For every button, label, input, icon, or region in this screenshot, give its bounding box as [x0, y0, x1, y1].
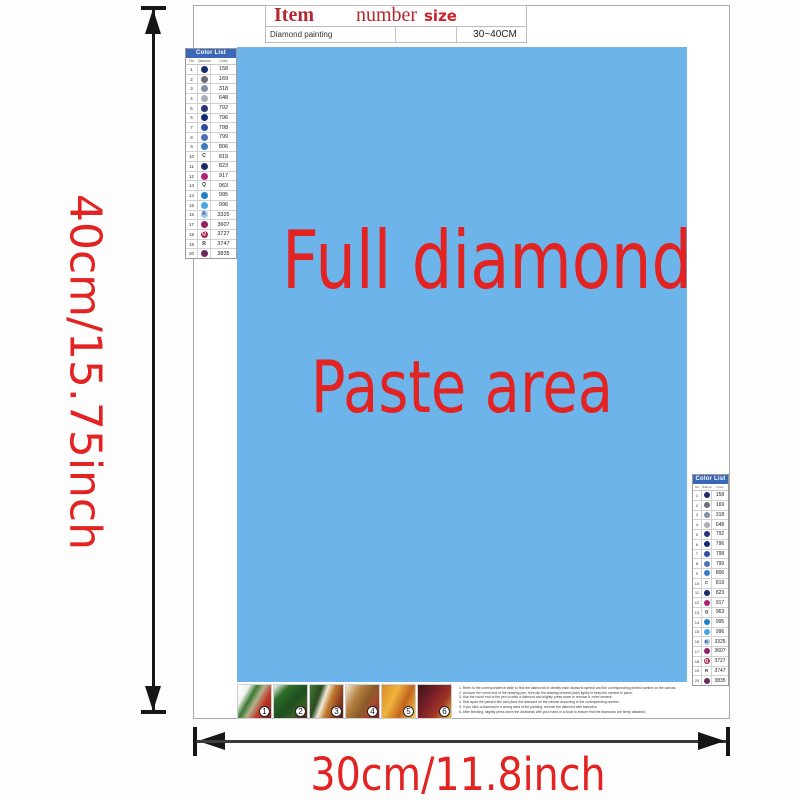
diamond-symbol-icon [201, 202, 208, 209]
item-table-row: Diamond painting 30~40CM [266, 27, 526, 43]
diamond-symbol-icon [704, 678, 710, 684]
diamond-symbol-cell [198, 104, 211, 113]
color-list-row: 16 K 3325 [693, 637, 728, 647]
diamond-symbol-cell [198, 123, 211, 132]
color-row-number: 10 [186, 152, 198, 161]
color-row-number: 5 [693, 530, 702, 539]
diamond-symbol-icon [201, 114, 208, 121]
dmc-color-code: 3325 [712, 639, 728, 645]
color-row-number: 8 [693, 559, 702, 568]
diamond-symbol-cell [198, 75, 211, 84]
color-row-number: 12 [186, 172, 198, 181]
color-row-number: 18 [186, 230, 198, 239]
diamond-symbol-icon [704, 600, 710, 606]
diamond-symbol-icon [704, 561, 710, 567]
color-row-number: 14 [186, 191, 198, 200]
color-list-row: 15 996 [186, 201, 236, 211]
color-list-row: 9 806 [693, 569, 728, 579]
width-arrow-line [196, 740, 727, 743]
step-number-badge: 2 [295, 706, 306, 717]
color-row-number: 16 [186, 211, 198, 220]
diamond-symbol-cell: K [198, 211, 211, 220]
color-row-number: 3 [693, 511, 702, 520]
color-row-number: 4 [186, 94, 198, 103]
col-diamond-label: Diamond [198, 58, 211, 64]
dmc-color-code: 158 [712, 492, 728, 498]
diamond-symbol-cell [702, 520, 712, 529]
diamond-symbol-cell [702, 550, 712, 559]
diamond-symbol-icon [704, 590, 710, 596]
diamond-symbol-icon [704, 551, 710, 557]
diamond-symbol-cell: Q [198, 181, 211, 190]
color-row-number: 20 [693, 676, 702, 685]
dmc-color-code: 996 [712, 629, 728, 635]
diamond-symbol-icon [201, 95, 208, 102]
color-list-row: 15 996 [693, 628, 728, 638]
col-color-label: Color [712, 484, 728, 490]
color-row-number: 11 [186, 162, 198, 171]
item-table-header: Item number size [266, 6, 526, 27]
diamond-symbol-cell [702, 501, 712, 510]
color-list-subheader: No. Diamond Color [186, 58, 236, 65]
dmc-color-code: 318 [712, 512, 728, 518]
dmc-color-code: 3747 [712, 668, 728, 674]
diamond-symbol-icon: C [201, 153, 208, 160]
dmc-color-code: 806 [712, 570, 728, 576]
step-thumbnail-image: 6 [417, 684, 452, 719]
color-list-row: 10 C 819 [693, 579, 728, 589]
color-list-row: 4 648 [186, 94, 236, 104]
diamond-symbol-cell: K [702, 637, 712, 646]
color-row-number: 14 [693, 618, 702, 627]
diamond-symbol-icon: K [201, 211, 208, 218]
color-list-row: 1 158 [186, 65, 236, 75]
color-list-row: 14 995 [693, 618, 728, 628]
color-list-left: Color List No. Diamond Color 1 158 2 169… [185, 48, 237, 259]
diamond-symbol-cell [702, 598, 712, 607]
dmc-color-code: 917 [712, 600, 728, 606]
col-color-label: Color [211, 58, 236, 64]
diamond-symbol-cell [702, 618, 712, 627]
color-row-number: 1 [186, 65, 198, 74]
color-row-number: 11 [693, 589, 702, 598]
color-row-number: 7 [186, 123, 198, 132]
step-thumbnail-image: 4 [345, 684, 380, 719]
dmc-color-code: 3325 [211, 212, 236, 218]
width-arrow-right-head [698, 732, 725, 750]
dmc-color-code: 3835 [211, 251, 236, 257]
color-list-row: 18 Q 3727 [186, 230, 236, 240]
diamond-symbol-cell: R [198, 240, 211, 249]
diamond-symbol-cell [702, 540, 712, 549]
color-row-number: 19 [693, 667, 702, 676]
dmc-color-code: 648 [712, 522, 728, 528]
step-number-badge: 3 [331, 706, 342, 717]
dmc-color-code: 796 [211, 115, 236, 121]
color-list-row: 8 799 [693, 559, 728, 569]
dmc-color-code: 799 [712, 561, 728, 567]
color-row-number: 20 [186, 249, 198, 258]
dmc-color-code: 169 [712, 502, 728, 508]
diamond-symbol-cell: Q [198, 230, 211, 239]
dmc-color-code: 823 [712, 590, 728, 596]
color-list-row: 5 792 [693, 530, 728, 540]
color-list-row: 7 798 [693, 550, 728, 560]
step-number-badge: 4 [367, 706, 378, 717]
color-list-row: 13 Q 963 [186, 181, 236, 191]
step-thumbnails: 1 2 3 4 5 6 [237, 684, 457, 719]
dmc-color-code: 963 [712, 609, 728, 615]
dmc-color-code: 823 [211, 163, 236, 169]
diamond-symbol-icon [704, 648, 710, 654]
color-list-row: 19 R 3747 [186, 240, 236, 250]
color-list-subheader: No. Diamond Color [693, 484, 728, 491]
color-row-number: 13 [186, 181, 198, 190]
color-list-row: 16 K 3325 [186, 211, 236, 221]
item-header-label: Item [274, 4, 314, 27]
step-thumbnail-image: 3 [309, 684, 344, 719]
diamond-symbol-cell [702, 628, 712, 637]
paste-area-title: Full diamonds [282, 214, 642, 307]
diamond-symbol-icon [704, 570, 710, 576]
color-list-row: 3 318 [186, 84, 236, 94]
diamond-symbol-cell [198, 65, 211, 74]
color-list-row: 11 823 [693, 589, 728, 599]
diamond-symbol-cell [198, 133, 211, 142]
diamond-symbol-cell [198, 249, 211, 258]
color-list-row: 17 3607 [693, 647, 728, 657]
diamond-symbol-cell [198, 172, 211, 181]
color-row-number: 13 [693, 608, 702, 617]
height-dimension-label: 40cm/15.75inch [60, 194, 111, 550]
dmc-color-code: 995 [211, 192, 236, 198]
diamond-symbol-cell [198, 191, 211, 200]
instruction-text-block: 1. Refer to the correspondence table to … [459, 686, 703, 714]
diamond-symbol-cell [198, 162, 211, 171]
diamond-symbol-cell: C [198, 152, 211, 161]
dmc-color-code: 799 [211, 134, 236, 140]
diamond-symbol-icon [201, 124, 208, 131]
diamond-symbol-icon [201, 173, 208, 180]
color-row-number: 2 [186, 75, 198, 84]
diamond-symbol-cell [198, 143, 211, 152]
diamond-symbol-icon [201, 105, 208, 112]
color-row-number: 7 [693, 550, 702, 559]
table-divider [395, 27, 396, 43]
diamond-symbol-icon [201, 143, 208, 150]
diamond-symbol-icon [704, 629, 710, 635]
diamond-symbol-icon [201, 192, 208, 199]
diamond-symbol-cell [702, 559, 712, 568]
color-list-row: 6 796 [693, 540, 728, 550]
diamond-symbol-icon [704, 531, 710, 537]
color-list-row: 4 648 [693, 520, 728, 530]
diamond-symbol-cell [198, 94, 211, 103]
color-list-row: 11 823 [186, 162, 236, 172]
step-thumbnail-image: 2 [273, 684, 308, 719]
dmc-color-code: 169 [211, 76, 236, 82]
height-arrow-down-head [145, 686, 161, 711]
col-no-label: No. [186, 58, 198, 64]
dmc-color-code: 648 [211, 95, 236, 101]
color-list-row: 3 318 [693, 511, 728, 521]
color-row-number: 19 [186, 240, 198, 249]
col-diamond-label: Diamond [702, 484, 712, 490]
height-arrow-line [152, 10, 155, 711]
diamond-symbol-icon [704, 541, 710, 547]
dmc-color-code: 3607 [712, 648, 728, 654]
color-list-row: 9 806 [186, 143, 236, 153]
color-row-number: 10 [693, 579, 702, 588]
dmc-color-code: 318 [211, 86, 236, 92]
color-row-number: 6 [186, 114, 198, 123]
diamond-symbol-cell: R [702, 667, 712, 676]
color-row-number: 9 [693, 569, 702, 578]
diamond-symbol-icon [704, 502, 710, 508]
item-info-table: Item number size Diamond painting 30~40C… [265, 5, 527, 43]
color-row-number: 15 [693, 628, 702, 637]
diamond-symbol-icon: K [704, 639, 710, 645]
color-list-right: Color List No. Diamond Color 1 158 2 169… [692, 474, 729, 686]
color-row-number: 1 [693, 491, 702, 500]
dmc-color-code: 3727 [211, 231, 236, 237]
diamond-symbol-icon: Q [201, 182, 208, 189]
diamond-symbol-cell [702, 530, 712, 539]
diamond-symbol-icon [201, 76, 208, 83]
diamond-symbol-cell: C [702, 579, 712, 588]
width-arrow-right-cap [726, 727, 730, 756]
color-row-number: 17 [693, 647, 702, 656]
diamond-symbol-icon [704, 522, 710, 528]
dmc-color-code: 3727 [712, 658, 728, 664]
item-name-value: Diamond painting [270, 30, 332, 39]
paste-area-subtitle: Paste area [282, 345, 642, 429]
color-list-title: Color List [186, 49, 236, 58]
diamond-symbol-icon [201, 221, 208, 228]
color-list-row: 20 3835 [693, 676, 728, 685]
diamond-symbol-cell [198, 114, 211, 123]
dmc-color-code: 819 [712, 580, 728, 586]
diamond-symbol-icon: Q [704, 609, 710, 615]
instruction-line: 6. After finishing, slightly press down … [459, 710, 703, 715]
diamond-symbol-cell: Q [702, 657, 712, 666]
diamond-symbol-cell [702, 676, 712, 685]
dmc-color-code: 3835 [712, 678, 728, 684]
color-row-number: 15 [186, 201, 198, 210]
color-row-number: 16 [693, 637, 702, 646]
step-number-badge: 1 [259, 706, 270, 717]
color-list-row: 13 Q 963 [693, 608, 728, 618]
dmc-color-code: 798 [211, 125, 236, 131]
dmc-color-code: 963 [211, 183, 236, 189]
dmc-color-code: 3747 [211, 241, 236, 247]
color-list-row: 6 796 [186, 114, 236, 124]
dmc-color-code: 917 [211, 173, 236, 179]
dmc-color-code: 796 [712, 541, 728, 547]
color-row-number: 17 [186, 220, 198, 229]
color-row-number: 9 [186, 143, 198, 152]
step-thumbnail-image: 5 [381, 684, 416, 719]
color-list-body: 1 158 2 169 3 318 4 648 [693, 491, 728, 685]
paste-area: Full diamonds Paste area [237, 47, 687, 682]
color-row-number: 3 [186, 84, 198, 93]
color-list-row: 12 917 [693, 598, 728, 608]
diamond-symbol-cell [702, 491, 712, 500]
color-row-number: 8 [186, 133, 198, 142]
color-list-row: 5 792 [186, 104, 236, 114]
diamond-symbol-icon [704, 492, 710, 498]
diamond-symbol-icon: Q [201, 231, 208, 238]
dmc-color-code: 995 [712, 619, 728, 625]
color-list-row: 8 799 [186, 133, 236, 143]
step-number-badge: 5 [403, 706, 414, 717]
color-row-number: 18 [693, 657, 702, 666]
color-list-row: 18 Q 3727 [693, 657, 728, 667]
color-list-row: 20 3835 [186, 249, 236, 258]
dmc-color-code: 792 [211, 105, 236, 111]
height-arrow-bottom-cap [141, 710, 166, 714]
dmc-color-code: 158 [211, 66, 236, 72]
diamond-symbol-icon: Q [704, 658, 710, 664]
diamond-symbol-cell [702, 647, 712, 656]
width-dimension-label: 30cm/11.8inch [310, 748, 605, 800]
item-size-value: 30~40CM [466, 29, 524, 40]
diamond-symbol-cell [702, 511, 712, 520]
color-list-row: 2 169 [186, 75, 236, 85]
color-row-number: 4 [693, 520, 702, 529]
diamond-symbol-icon: R [201, 241, 208, 248]
dmc-color-code: 792 [712, 531, 728, 537]
instruction-line: 1. Refer to the correspondence table to … [459, 686, 703, 691]
dmc-color-code: 806 [211, 144, 236, 150]
diamond-symbol-icon: R [704, 668, 710, 674]
color-list-title: Color List [693, 475, 728, 484]
size-header-label: size [424, 7, 457, 25]
table-divider [456, 27, 457, 43]
step-number-badge: 6 [439, 706, 450, 717]
step-thumbnail-image: 1 [237, 684, 272, 719]
dmc-color-code: 819 [211, 154, 236, 160]
color-list-row: 7 798 [186, 123, 236, 133]
color-list-row: 10 C 819 [186, 152, 236, 162]
number-header-label: number [356, 4, 417, 27]
diamond-symbol-icon [201, 250, 208, 257]
diamond-symbol-cell [702, 589, 712, 598]
diamond-symbol-icon [201, 66, 208, 73]
color-list-row: 17 3607 [186, 220, 236, 230]
diamond-symbol-icon [201, 85, 208, 92]
dmc-color-code: 996 [211, 202, 236, 208]
color-row-number: 6 [693, 540, 702, 549]
color-list-row: 12 917 [186, 172, 236, 182]
diamond-symbol-cell [198, 84, 211, 93]
color-row-number: 2 [693, 501, 702, 510]
col-no-label: No. [693, 484, 702, 490]
color-list-body: 1 158 2 169 3 318 4 648 [186, 65, 236, 258]
diamond-symbol-icon [201, 163, 208, 170]
diamond-symbol-cell [702, 569, 712, 578]
color-list-row: 1 158 [693, 491, 728, 501]
color-row-number: 5 [186, 104, 198, 113]
color-list-row: 19 R 3747 [693, 667, 728, 677]
diamond-symbol-icon [704, 619, 710, 625]
diamond-symbol-cell [198, 220, 211, 229]
diamond-symbol-cell [198, 201, 211, 210]
color-list-row: 14 995 [186, 191, 236, 201]
dmc-color-code: 3607 [211, 222, 236, 228]
dmc-color-code: 798 [712, 551, 728, 557]
color-list-row: 2 169 [693, 501, 728, 511]
diamond-symbol-icon: C [704, 580, 710, 586]
diamond-symbol-icon [201, 134, 208, 141]
diamond-symbol-cell: Q [702, 608, 712, 617]
color-row-number: 12 [693, 598, 702, 607]
diamond-symbol-icon [704, 512, 710, 518]
